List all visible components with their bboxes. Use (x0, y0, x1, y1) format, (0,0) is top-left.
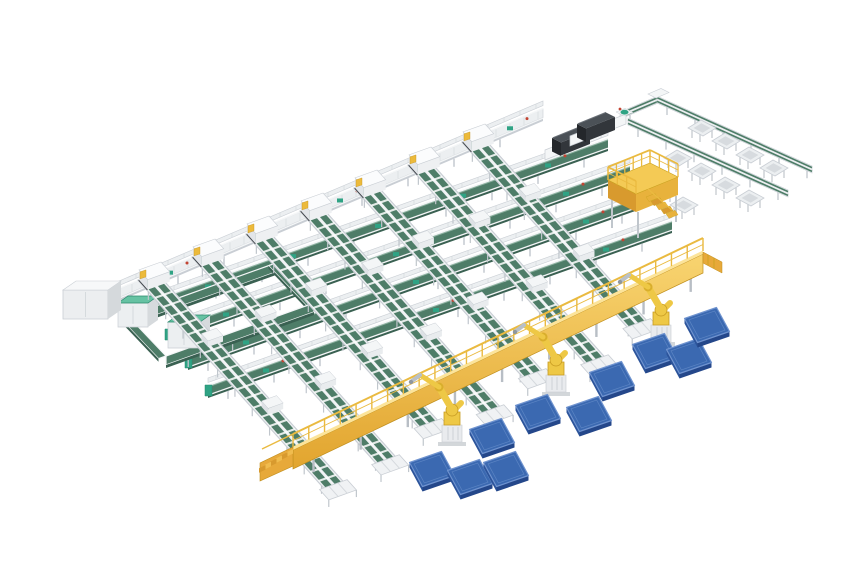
belt-module (413, 280, 419, 284)
discharge-tray (736, 147, 764, 169)
sensor-dot (602, 210, 605, 213)
machine-cap (621, 110, 629, 115)
robot-gripper (513, 330, 517, 334)
sensor-dot (622, 238, 625, 241)
factory-render (0, 0, 860, 580)
walkway-end-ramp (703, 252, 722, 273)
discharge-tray (760, 160, 788, 182)
discharge-tray (736, 190, 764, 212)
pallet (470, 419, 515, 459)
robot-base-plate (438, 442, 466, 446)
discharge-trays (646, 120, 788, 219)
robot-gripper (409, 380, 413, 384)
robot-gripper (618, 280, 622, 284)
discharge-tray (712, 177, 740, 199)
belt-module (563, 192, 569, 196)
belt-module (337, 198, 343, 202)
belt-module (263, 368, 269, 372)
belt-module (223, 312, 229, 316)
belt-module (433, 308, 439, 312)
belt-module (507, 126, 513, 130)
sensor-dot (582, 183, 585, 186)
sensor-dot (564, 154, 567, 157)
belt-module (375, 224, 381, 228)
belt-module (583, 220, 589, 224)
robot-pedestal (442, 425, 462, 442)
pallet (516, 395, 561, 435)
sensor-dot (526, 117, 529, 120)
electrical-cabinet (63, 281, 121, 319)
robot-pedestal (546, 375, 566, 392)
belt-module (243, 340, 249, 344)
pallet (567, 397, 612, 437)
belt-module (545, 163, 551, 167)
takeaway-corner (648, 89, 669, 99)
buffer-machine (118, 296, 158, 327)
belt-module (603, 248, 609, 252)
discharge-tray (688, 163, 716, 185)
sensor-dot (619, 108, 622, 111)
sensor-dot (186, 262, 189, 265)
drive-cap (205, 385, 212, 396)
belt-module (393, 252, 399, 256)
sortation-plant-scene (0, 0, 860, 580)
